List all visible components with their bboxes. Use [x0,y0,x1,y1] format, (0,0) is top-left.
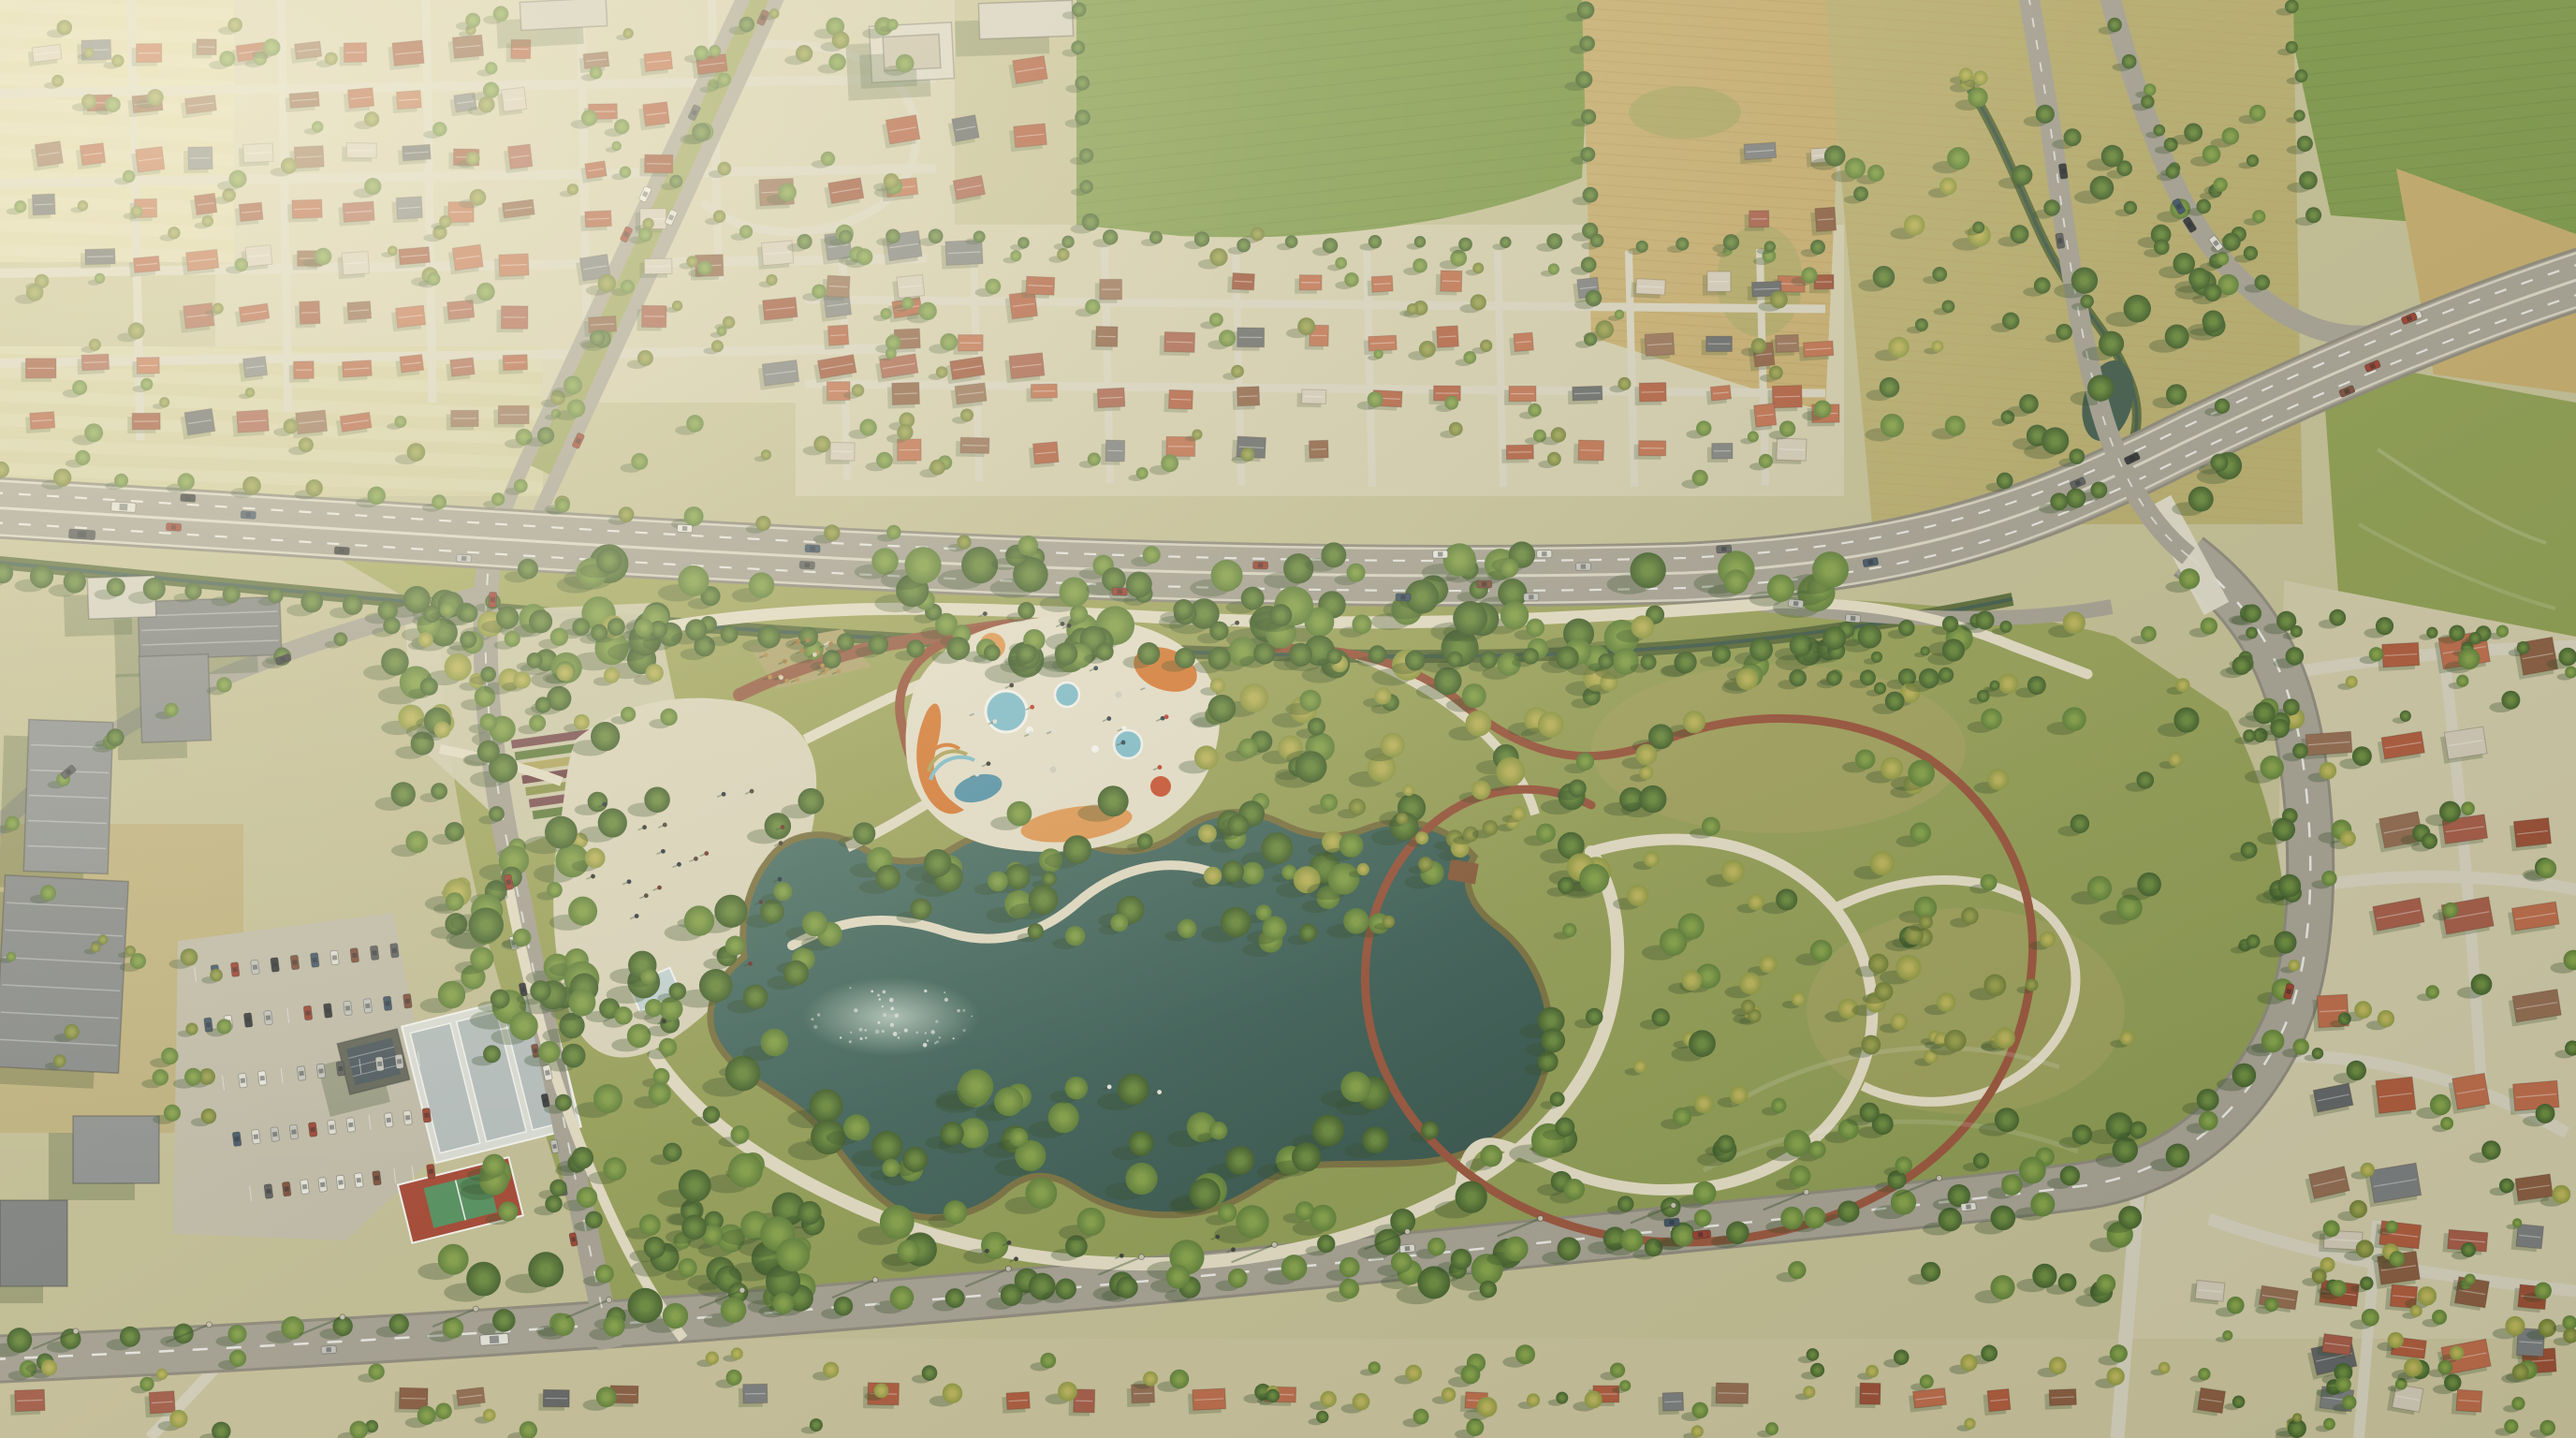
aerial-photo: Aerial drone photo of a large suburban p… [0,0,2576,1438]
sun-haze-topleft [0,0,2576,1438]
aerial-photo-stage: Aerial drone photo of a large suburban p… [0,0,2576,1438]
